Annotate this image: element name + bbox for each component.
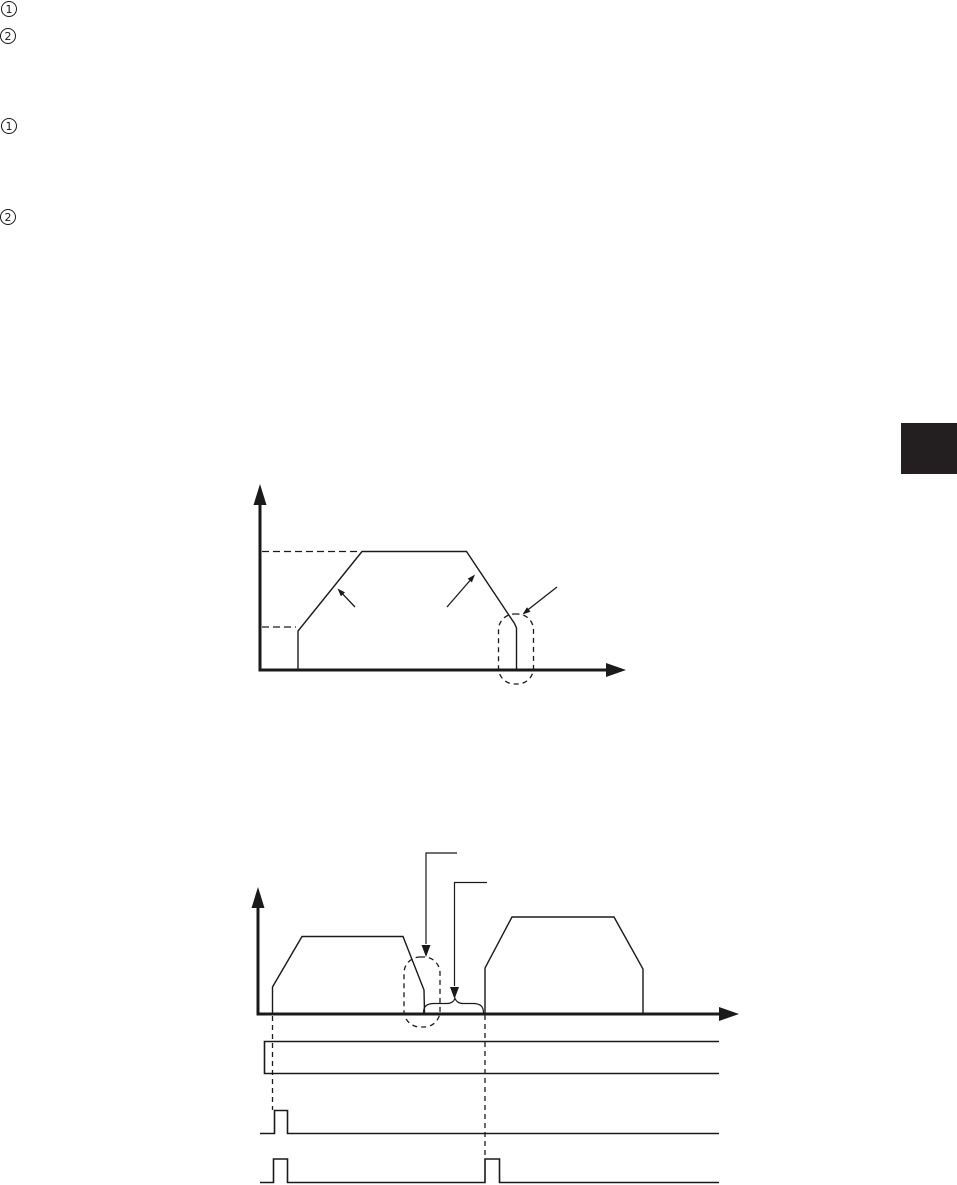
- speed-profile-figure: [254, 484, 627, 684]
- fig1-y-axis-arrowhead-icon: [254, 484, 267, 505]
- fig2-move1-profile-line: [273, 937, 425, 1014]
- fig1-x-axis-arrowhead-icon: [606, 663, 626, 677]
- fig1-acceleration-arrow-icon: [338, 589, 356, 608]
- fig2-stop-callout-arrow-icon: [422, 853, 458, 957]
- fig2-pause-brace-icon: [424, 999, 484, 1014]
- manual-page: 1 2 1 2: [0, 0, 957, 1185]
- fig2-decel-stop-highlight-capsule: [404, 957, 440, 1027]
- fig2-x-axis-arrowhead-icon: [719, 1007, 739, 1021]
- fig1-speed-profile-line: [298, 552, 517, 670]
- fig2-signal-double-pulse: [260, 1159, 719, 1183]
- fig1-stop-leader-arrow-icon: [523, 587, 558, 615]
- fig2-pause-callout-arrow-icon: [450, 883, 487, 1000]
- fig2-move2-profile-line: [485, 917, 643, 1013]
- fig2-y-axis-arrowhead-icon: [252, 887, 265, 908]
- fig1-deceleration-arrow-icon: [447, 575, 475, 608]
- diagrams-svg: [0, 0, 957, 1185]
- fig2-signal-single-pulse: [260, 1111, 719, 1134]
- fig2-signal-level-band: [265, 1042, 720, 1074]
- timing-figure: [252, 853, 740, 1183]
